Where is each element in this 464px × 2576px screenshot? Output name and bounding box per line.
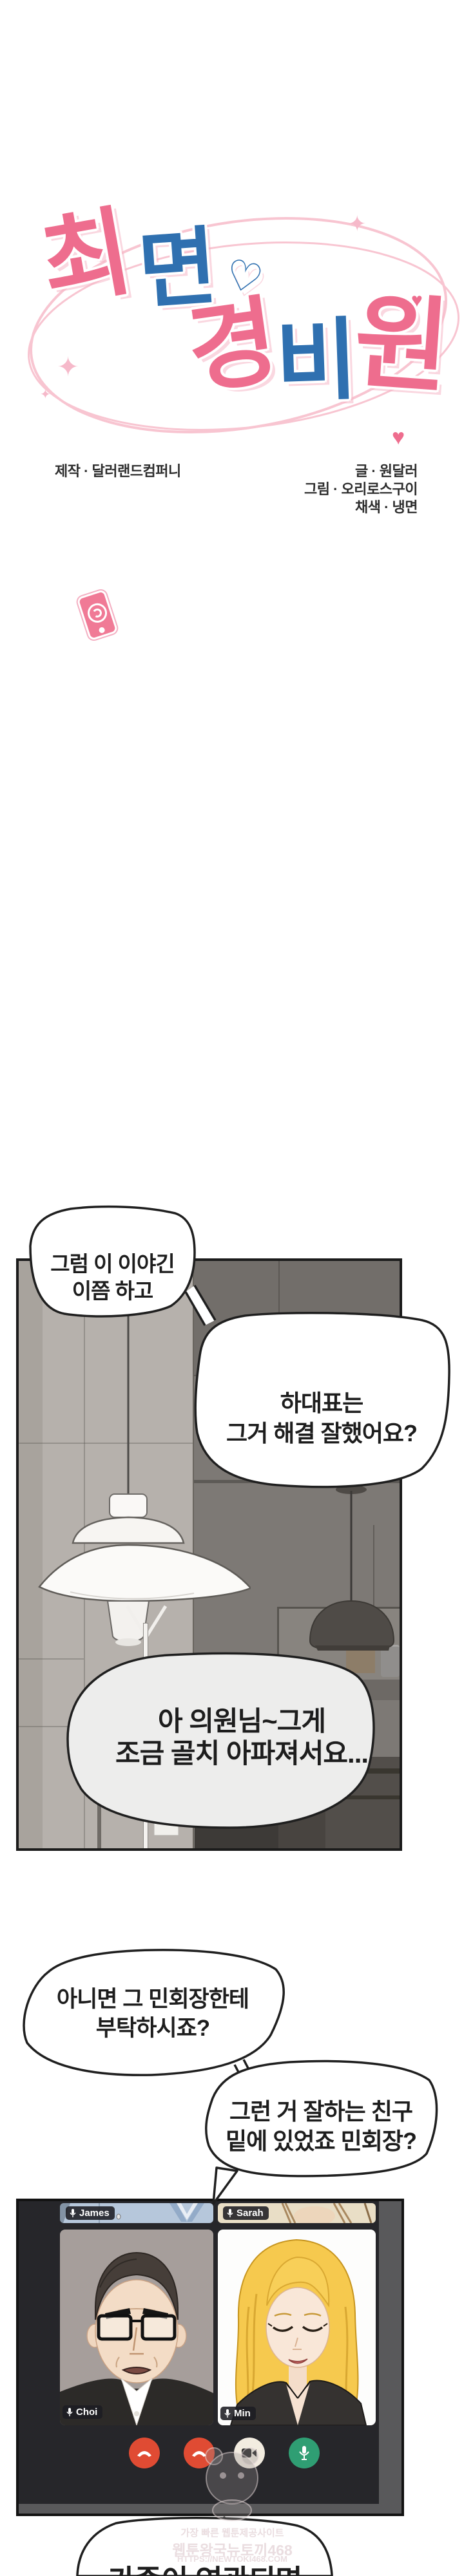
mic-icon — [227, 2209, 233, 2218]
speech-bubble-3: 아 의원님~그게 조금 골치 아파져서요... — [87, 1705, 396, 1770]
mic-icon — [224, 2409, 231, 2418]
hypnosis-phone-icon — [76, 589, 118, 641]
title-char: 원 — [351, 290, 453, 399]
sparkle-icon: ✦ — [348, 211, 367, 237]
hangup-button — [129, 2438, 160, 2468]
title-char: 최 — [34, 202, 139, 313]
speech-line: 조금 골치 아파져서요... — [87, 1738, 396, 1770]
spiral-icon — [85, 601, 110, 625]
speech-line: 이쯤 하고 — [37, 1278, 188, 1305]
webtoon-page: 최 면 ♡ 경 비 원 ♥ ♥ ✦ ✦ ✦ 제작 · 달러랜드컴퍼니 글 · 원… — [0, 0, 464, 2576]
speech-line: 부탁하시죠? — [37, 2014, 269, 2043]
speech-bubble-5: 그런 거 잘하는 친구 밑에 있었죠 민회장? — [211, 2097, 430, 2156]
min-portrait — [218, 2230, 376, 2425]
participant-name: James — [79, 2208, 110, 2219]
title-logo: 최 면 ♡ 경 비 원 ♥ ♥ ✦ ✦ ✦ — [0, 187, 464, 464]
speech-bubble-2: 하대표는 그거 해결 잘했어요? — [212, 1388, 431, 1448]
nametag-min: Min — [220, 2407, 256, 2420]
speech-bubble-4: 아니면 그 민회장한테 부탁하시죠? — [37, 1985, 269, 2043]
nametag-sarah: Sarah — [223, 2206, 269, 2220]
ph5-pendant-lamp — [32, 1261, 251, 1647]
speech-bubble-6: 가족이 연관되면 — [76, 2563, 334, 2576]
title-small-heart: ♥ — [411, 290, 423, 312]
choi-portrait — [60, 2230, 213, 2425]
speech-bubble-1: 그럼 이 이야긴 이쯤 하고 — [37, 1251, 188, 1305]
speech-line: 가족이 연관되면 — [76, 2563, 334, 2576]
watermark-line-3: HTTPS://NEWTOKI468.COM — [153, 2554, 311, 2564]
participant-name: Choi — [76, 2407, 97, 2418]
title-char: 경 — [182, 292, 284, 400]
mic-icon — [70, 2209, 76, 2218]
nametag-james: James — [66, 2206, 115, 2220]
speech-line: 그런 거 잘하는 친구 — [211, 2097, 430, 2126]
title-small-heart: ♥ — [392, 425, 405, 450]
dark-pendant-lamp — [302, 1483, 402, 1670]
speech-line: 아 의원님~그게 — [87, 1705, 396, 1738]
watermark-mascot — [187, 2441, 277, 2521]
sparkle-icon: ✦ — [57, 351, 79, 383]
speech-line: 그거 해결 잘했어요? — [212, 1418, 431, 1448]
speech-line: 밑에 있었죠 민회장? — [211, 2126, 430, 2156]
shelf-line — [277, 1795, 400, 1799]
mic-icon — [66, 2408, 73, 2417]
speech-line: 아니면 그 민회장한테 — [37, 1985, 269, 2014]
participant-name: Min — [234, 2408, 251, 2419]
title-char: 비 — [275, 316, 360, 407]
speech-line: 그럼 이 이야긴 — [37, 1251, 188, 1278]
low-table — [195, 1810, 278, 1848]
counter — [277, 1680, 400, 1700]
participant-name: Sarah — [237, 2208, 264, 2219]
video-tile-choi — [60, 2230, 213, 2425]
microphone-icon — [299, 2446, 309, 2460]
watermark-line-1: 가장 빠른 웹툰제공사이트 — [153, 2526, 311, 2539]
credit-coloring: 채색 · 냉면 — [250, 496, 418, 516]
speech-line: 하대표는 — [212, 1388, 431, 1418]
hangup-icon — [136, 2449, 153, 2457]
screen-bezel — [379, 2201, 401, 2514]
sparkle-icon: ✦ — [40, 386, 51, 402]
paper-sheet — [202, 1780, 267, 1801]
video-tile-min — [218, 2230, 376, 2425]
nametag-choi: Choi — [63, 2405, 102, 2419]
microphone-button — [289, 2438, 320, 2468]
